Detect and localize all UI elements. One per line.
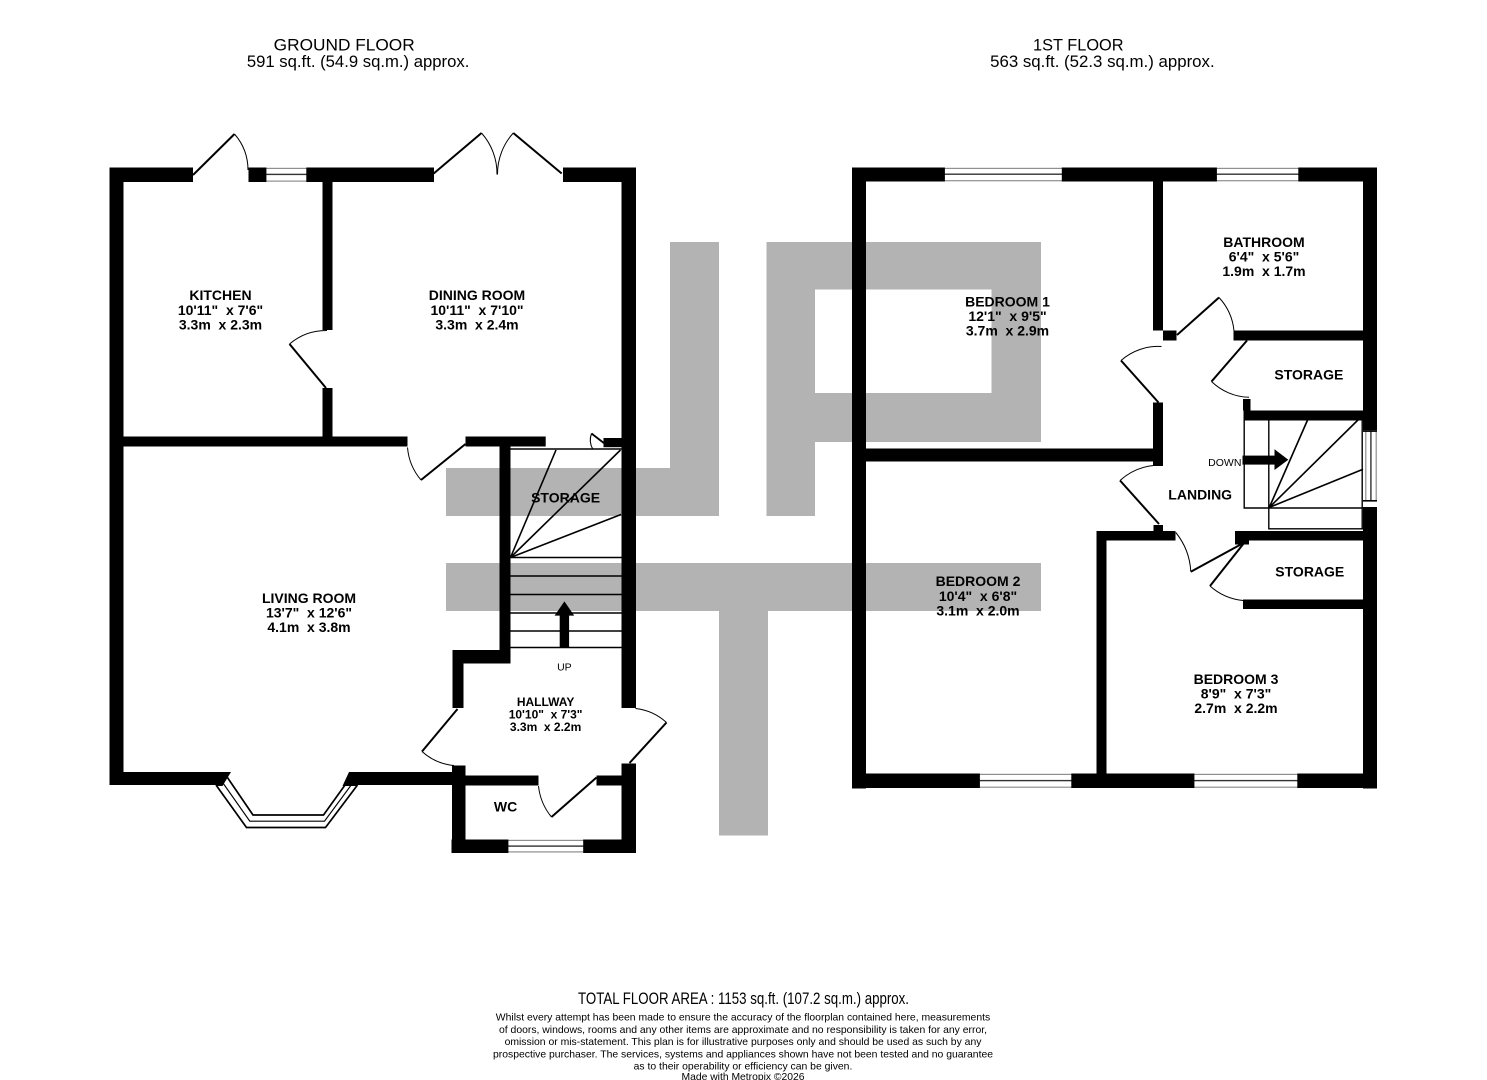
svg-text:prospective purchaser. The ser: prospective purchaser. The services, sys… [493,1049,993,1060]
svg-text:KITCHEN: KITCHEN [189,287,251,303]
svg-text:1.9m x 1.7m: 1.9m x 1.7m [1222,263,1305,279]
svg-text:3.3m x 2.4m: 3.3m x 2.4m [435,317,518,333]
svg-text:DOWN: DOWN [1208,457,1241,469]
svg-text:STORAGE: STORAGE [531,490,600,506]
svg-text:3.7m x 2.9m: 3.7m x 2.9m [966,323,1049,339]
svg-text:DINING ROOM: DINING ROOM [429,287,525,303]
svg-text:Whilst every attempt has been: Whilst every attempt has been made to en… [496,1013,990,1024]
svg-text:of doors, windows, rooms and a: of doors, windows, rooms and any other i… [499,1025,987,1036]
svg-text:TOTAL FLOOR AREA : 1153 sq.ft.: TOTAL FLOOR AREA : 1153 sq.ft. (107.2 sq… [578,989,909,1008]
svg-text:591 sq.ft. (54.9 sq.m.) approx: 591 sq.ft. (54.9 sq.m.) approx. [247,52,470,71]
svg-text:STORAGE: STORAGE [1274,366,1343,382]
svg-text:omission or mis-statement. Thi: omission or mis-statement. This plan is … [505,1037,983,1048]
svg-text:3.3m x 2.2m: 3.3m x 2.2m [510,720,581,734]
svg-text:STORAGE: STORAGE [1275,564,1344,580]
svg-text:3.1m x 2.0m: 3.1m x 2.0m [936,603,1019,619]
svg-text:10'11" x 7'10": 10'11" x 7'10" [430,302,523,318]
svg-text:WC: WC [494,798,517,814]
svg-text:LANDING: LANDING [1168,487,1232,503]
svg-text:13'7" x 12'6": 13'7" x 12'6" [266,605,352,621]
svg-text:as to their operability or eff: as to their operability or efficiency ca… [634,1062,853,1073]
svg-text:Made with Metropix ©2026: Made with Metropix ©2026 [682,1072,805,1080]
svg-text:UP: UP [557,662,572,674]
svg-text:10'11" x 7'6": 10'11" x 7'6" [178,302,263,318]
svg-text:BEDROOM 1: BEDROOM 1 [965,294,1050,310]
svg-text:BEDROOM 2: BEDROOM 2 [936,573,1021,589]
svg-text:563 sq.ft. (52.3 sq.m.) approx: 563 sq.ft. (52.3 sq.m.) approx. [990,52,1215,71]
svg-text:LIVING ROOM: LIVING ROOM [262,590,356,606]
svg-text:3.3m x 2.3m: 3.3m x 2.3m [179,317,262,333]
svg-text:4.1m x 3.8m: 4.1m x 3.8m [267,619,350,635]
svg-text:2.7m x 2.2m: 2.7m x 2.2m [1194,700,1277,716]
